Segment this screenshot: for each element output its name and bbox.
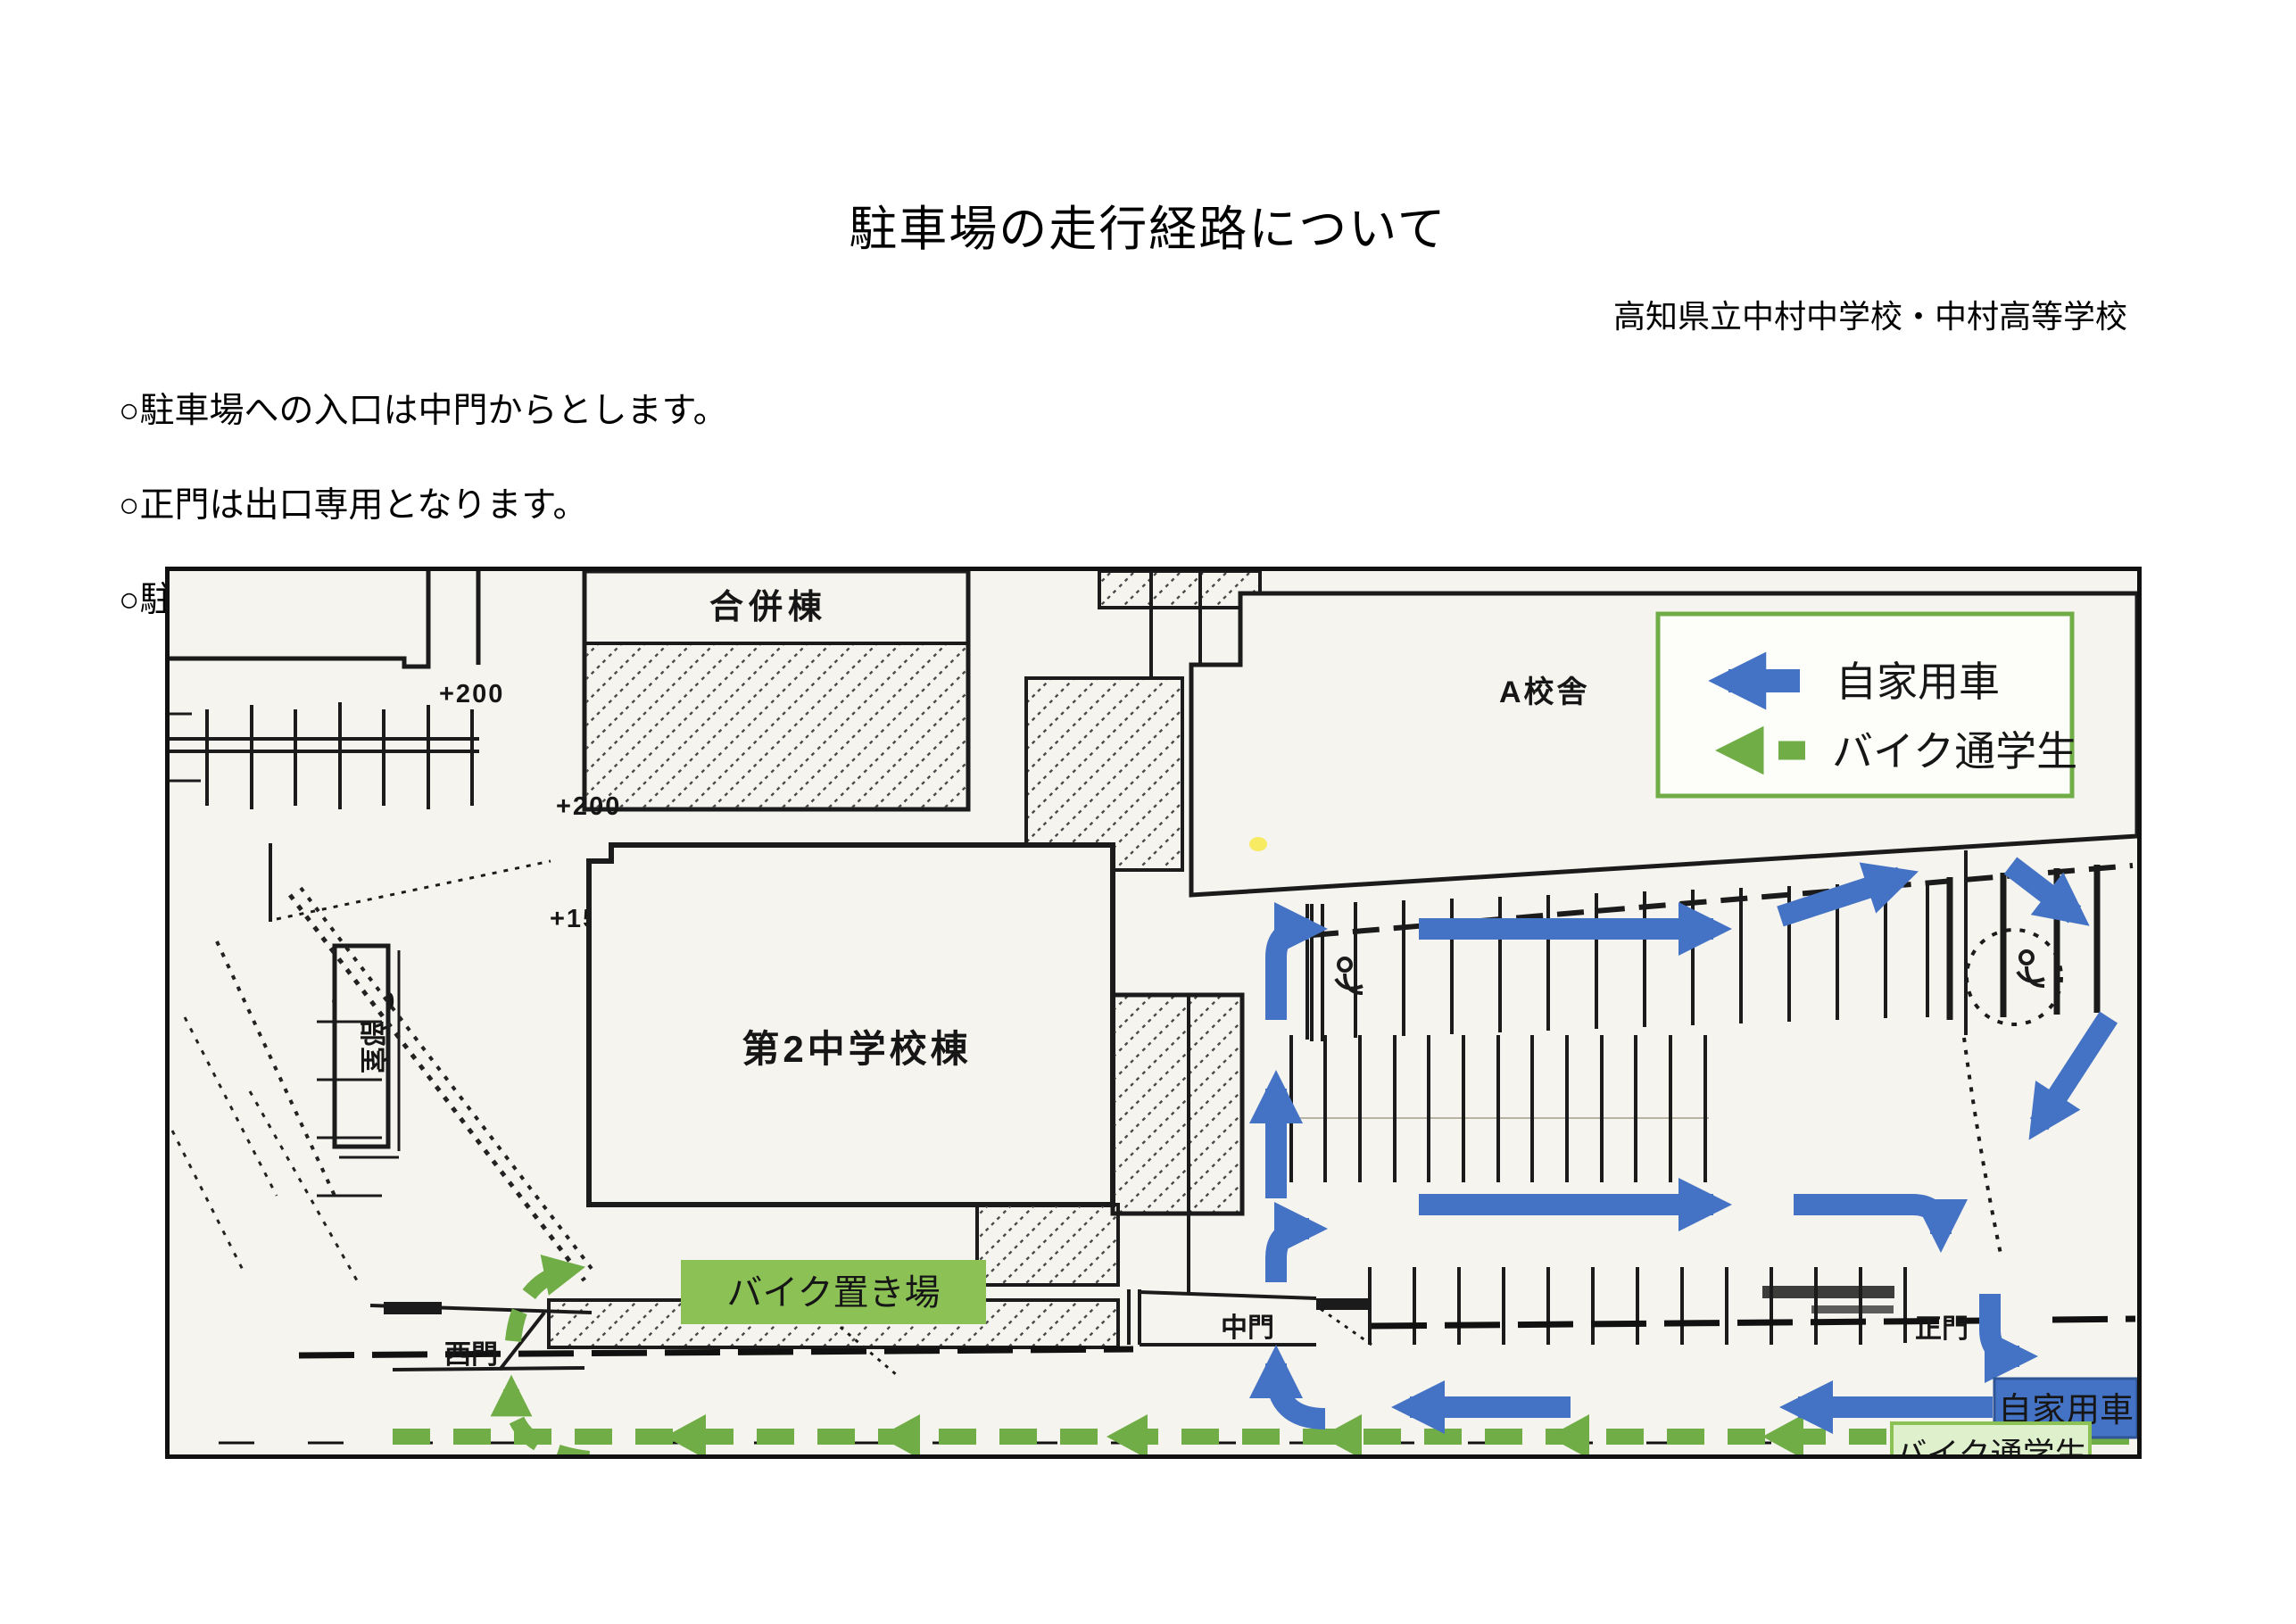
school-name: 高知県立中村中学校・中村高等学校: [1613, 291, 2127, 337]
west-gate-label: 西門: [444, 1340, 498, 1370]
elevation-mark: +200: [556, 792, 621, 821]
campus-map: 合併棟 A校舎 +200 +200 +150 +150: [165, 567, 2142, 1459]
jhs2-label: 第2中学校棟: [742, 1028, 971, 1070]
legend: 自家用車 バイク通学生: [1658, 614, 2077, 796]
bike-parking-label-box: バイク置き場: [681, 1260, 986, 1324]
south-parking-row: [1370, 1267, 1905, 1345]
a-building-label: A校舎: [1499, 675, 1590, 709]
note-line: ○正門は出口専用となります。: [119, 459, 728, 553]
middle-gate-label: 中門: [1221, 1313, 1274, 1343]
car-diagonal-down-left: [2039, 1017, 2109, 1124]
note-line: ○駐車場への入口は中門からとします。: [119, 364, 728, 459]
west-side-lines: [270, 843, 551, 1196]
topleft-building-lines: [170, 571, 478, 667]
car-exit-main-gate: [1990, 1294, 2019, 1356]
club-label: 部室: [357, 1020, 387, 1073]
exit-bike-label: バイク通学生: [1894, 1436, 2086, 1454]
bike-route-westgate-curve-up: [511, 1389, 589, 1454]
car-elbow-lower-aisle: [1276, 1229, 1309, 1282]
car-diagonal-up-right: [1780, 877, 1901, 916]
topleft-parking-comb: [170, 702, 479, 809]
handicap-icon: [1336, 958, 1363, 993]
legend-bike-label: バイク通学生: [1832, 728, 2077, 775]
campus-map-drawing: 合併棟 A校舎 +200 +200 +150 +150: [170, 571, 2137, 1454]
gappei-label: 合併棟: [709, 589, 827, 626]
east-fence-dotted: [1964, 1038, 2002, 1258]
roundabout-circle: [1967, 930, 2061, 1024]
yellow-mark: [1249, 837, 1267, 851]
gappei-building: [584, 571, 1260, 870]
car-elbow-to-main-gate: [1794, 1205, 1941, 1234]
bike-parking-label: バイク置き場: [726, 1273, 940, 1313]
notice-page: 駐車場の走行経路について 高知県立中村中学校・中村高等学校 ○駐車場への入口は中…: [0, 0, 2296, 1624]
main-gate-label: 正門: [1915, 1314, 1969, 1344]
middle-gate-lines: [1316, 1298, 1372, 1345]
exit-bike-box: バイク通学生: [1892, 1423, 2090, 1454]
legend-car-label: 自家用車: [1836, 659, 2000, 705]
elevation-mark: +200: [439, 680, 504, 708]
handicap-icon: [2018, 951, 2044, 986]
car-entry-middle-gate: [1276, 1363, 1325, 1419]
car-elbow-upper-aisle: [1276, 929, 1309, 1020]
page-title: 駐車場の走行経路について: [0, 189, 2296, 260]
central-parking-block: [1285, 1035, 1709, 1182]
